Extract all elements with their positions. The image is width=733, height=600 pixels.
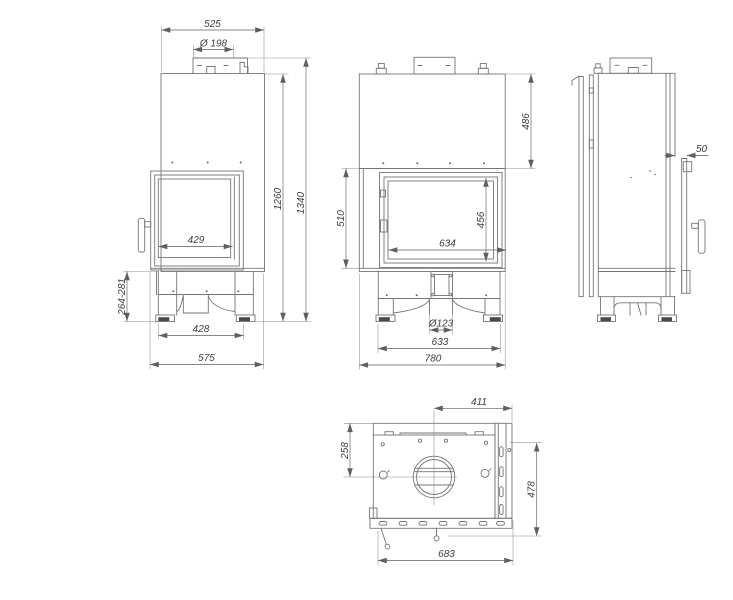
dim-glass-width: 634 xyxy=(439,239,456,250)
latch-loop xyxy=(434,536,439,541)
collar-step xyxy=(240,63,248,74)
dim-top-depth: 478 xyxy=(527,481,538,498)
dim-body-height: 1260 xyxy=(273,187,284,210)
rear-panel xyxy=(682,159,687,294)
latch-hook xyxy=(381,528,386,544)
mount-hole-left xyxy=(379,471,387,479)
dim-side-glass-width: 429 xyxy=(188,235,205,246)
dim-flue-center-offset: 411 xyxy=(471,397,487,408)
dim-feet-spacing-front: 633 xyxy=(432,337,449,348)
top-view: 411 258 478 683 xyxy=(340,397,542,566)
centerlines xyxy=(344,411,458,506)
side-view-dimensions: 525 Ø 198 429 264-281 428 575 1260 1340 xyxy=(117,19,311,369)
door-handle xyxy=(698,220,705,254)
profile-view-geometry xyxy=(572,58,705,322)
dim-base-height-range: 264-281 xyxy=(117,278,128,316)
side-view: 525 Ø 198 429 264-281 428 575 1260 1340 xyxy=(117,19,311,369)
top-view-geometry xyxy=(344,411,513,549)
mount-hole-right xyxy=(481,469,489,477)
front-view-geometry xyxy=(359,57,505,321)
fireplace-technical-drawing: 525 Ø 198 429 264-281 428 575 1260 1340 xyxy=(0,0,733,600)
dim-total-depth: 575 xyxy=(198,353,215,364)
dim-top-width: 683 xyxy=(438,549,455,560)
door-handle xyxy=(138,218,144,252)
dim-total-width: 780 xyxy=(425,354,442,365)
profile-view-dimensions: 50 xyxy=(665,144,709,156)
dim-glass-height: 456 xyxy=(476,211,487,228)
rear-bracket xyxy=(682,271,690,294)
dim-top-depth: 525 xyxy=(204,19,221,30)
dim-hood-height: 486 xyxy=(521,113,532,130)
side-view-geometry xyxy=(138,58,264,322)
front-view: 486 510 456 634 Ø123 633 780 xyxy=(336,57,536,369)
dim-total-height: 1340 xyxy=(296,191,307,214)
hinge-upper xyxy=(381,190,386,197)
dim-flue-diameter: Ø 198 xyxy=(199,39,228,50)
top-view-dimensions: 411 258 478 683 xyxy=(340,397,542,566)
dim-rear-offset: 50 xyxy=(696,144,708,155)
side-door-frame xyxy=(151,171,244,270)
dim-feet-spacing-side: 428 xyxy=(193,324,210,335)
profile-view: 50 xyxy=(572,58,709,322)
dim-door-height: 510 xyxy=(336,210,347,227)
dim-inlet-diameter: Ø123 xyxy=(428,319,454,330)
hinge-block xyxy=(589,140,593,148)
dim-flue-center-from-back: 258 xyxy=(340,442,351,460)
technical-drawing-page: 525 Ø 198 429 264-281 428 575 1260 1340 xyxy=(0,0,733,600)
front-rail xyxy=(370,518,512,528)
flue-stub xyxy=(207,67,215,74)
